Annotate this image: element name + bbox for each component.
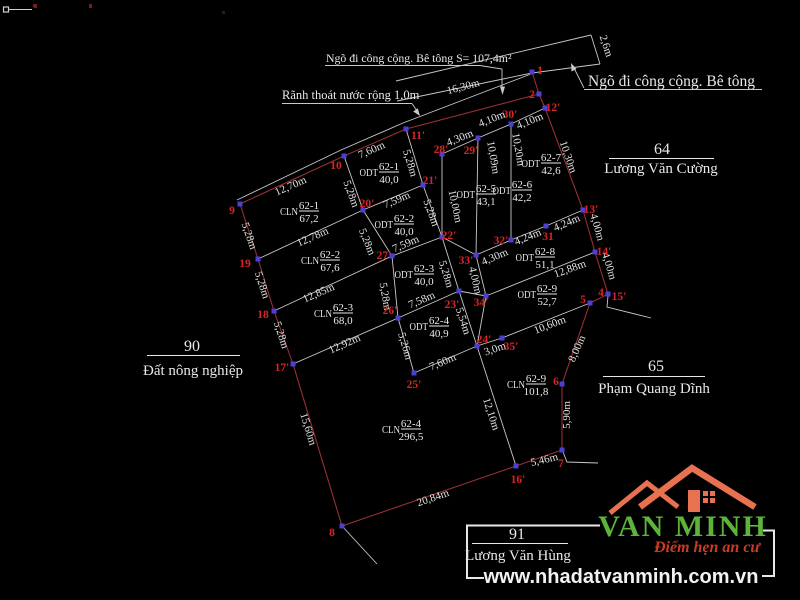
- svg-text:22': 22': [442, 230, 457, 242]
- svg-text:32': 32': [494, 235, 509, 247]
- svg-text:12': 12': [546, 102, 561, 114]
- svg-text:CLN: CLN: [301, 255, 320, 267]
- svg-text:23': 23': [445, 299, 460, 311]
- svg-text:34': 34': [474, 297, 489, 309]
- svg-text:62-9: 62-9: [537, 283, 558, 295]
- svg-text:Rãnh thoát nước rộng 1,0m: Rãnh thoát nước rộng 1,0m: [282, 88, 420, 102]
- svg-text:67,2: 67,2: [299, 213, 318, 225]
- svg-text:5,90m: 5,90m: [561, 401, 573, 429]
- svg-text:CLN: CLN: [280, 206, 299, 218]
- svg-text:1: 1: [537, 65, 543, 77]
- svg-text:ODT: ODT: [409, 321, 428, 333]
- svg-text:17': 17': [275, 362, 290, 374]
- svg-text:8: 8: [329, 527, 335, 539]
- svg-text:62-4: 62-4: [401, 418, 422, 430]
- svg-text:ODT: ODT: [394, 269, 413, 281]
- svg-text:28': 28': [434, 144, 449, 156]
- svg-text:40,0: 40,0: [379, 174, 399, 186]
- svg-text:67,6: 67,6: [320, 262, 340, 274]
- svg-text:2: 2: [529, 89, 535, 101]
- svg-text:13': 13': [584, 204, 599, 216]
- svg-text:Phạm Quang Dĩnh: Phạm Quang Dĩnh: [598, 381, 710, 397]
- svg-text:91: 91: [509, 526, 525, 543]
- svg-text:62-4: 62-4: [429, 315, 450, 327]
- svg-text:40,9: 40,9: [429, 328, 449, 340]
- svg-text:42,6: 42,6: [541, 165, 561, 177]
- svg-text:ODT: ODT: [359, 167, 378, 179]
- svg-text:ODT: ODT: [374, 219, 393, 231]
- svg-text:296,5: 296,5: [399, 431, 424, 443]
- svg-text:ODT: ODT: [456, 189, 475, 201]
- svg-text:40,0: 40,0: [414, 276, 434, 288]
- svg-text:11': 11': [411, 130, 425, 142]
- svg-text:15': 15': [612, 291, 627, 303]
- svg-text:26': 26': [383, 305, 398, 317]
- svg-text:ODT: ODT: [521, 158, 540, 170]
- svg-text:51,1: 51,1: [535, 259, 554, 271]
- svg-text:9: 9: [229, 205, 235, 217]
- svg-text:62-2: 62-2: [320, 249, 340, 261]
- svg-text:65: 65: [648, 358, 664, 375]
- svg-text:25': 25': [407, 379, 422, 391]
- svg-text:27': 27': [377, 250, 392, 262]
- svg-text:ODT: ODT: [517, 289, 536, 301]
- svg-text:52,7: 52,7: [537, 296, 557, 308]
- svg-text:21': 21': [423, 175, 438, 187]
- svg-text:90: 90: [184, 338, 200, 355]
- svg-text:62-6: 62-6: [512, 179, 533, 191]
- svg-text:ODT: ODT: [492, 185, 511, 197]
- svg-text:68,0: 68,0: [333, 315, 353, 327]
- svg-text:62-2: 62-2: [394, 213, 414, 225]
- svg-text:30': 30': [503, 109, 518, 121]
- svg-text:31: 31: [542, 231, 554, 243]
- svg-text:19: 19: [239, 258, 251, 270]
- svg-text:CLN: CLN: [314, 308, 333, 320]
- svg-text:Ngõ đi công cộng. Bê tông S= 1: Ngõ đi công cộng. Bê tông S= 107,4m²: [326, 51, 512, 65]
- svg-text:35': 35': [504, 341, 519, 353]
- svg-text:101,8: 101,8: [524, 386, 549, 398]
- svg-text:10: 10: [330, 160, 342, 172]
- svg-text:62-8: 62-8: [535, 246, 556, 258]
- svg-text:64: 64: [654, 141, 670, 158]
- svg-text:Đất nông nghiệp: Đất nông nghiệp: [143, 363, 243, 379]
- svg-text:62-1: 62-1: [299, 200, 319, 212]
- svg-text:24': 24': [477, 334, 492, 346]
- svg-text:6: 6: [553, 376, 559, 388]
- svg-text:62-9: 62-9: [526, 373, 547, 385]
- svg-text:Điểm hẹn an cư: Điểm hẹn an cư: [653, 539, 761, 556]
- svg-text:ODT: ODT: [515, 252, 534, 264]
- svg-text:40,0: 40,0: [394, 226, 414, 238]
- svg-text:42,2: 42,2: [512, 192, 531, 204]
- svg-text:Ngõ đi công cộng. Bê tông: Ngõ đi công cộng. Bê tông: [588, 73, 755, 90]
- svg-text:14': 14': [597, 246, 612, 258]
- svg-text:62-7: 62-7: [541, 152, 562, 164]
- svg-text:62-1: 62-1: [379, 161, 399, 173]
- svg-text:5: 5: [580, 294, 586, 306]
- svg-text:7: 7: [558, 458, 564, 470]
- svg-text:Lương Văn Cường: Lương Văn Cường: [604, 161, 718, 177]
- svg-text:18: 18: [257, 309, 269, 321]
- svg-text:33': 33': [459, 255, 474, 267]
- svg-text:16': 16': [511, 474, 526, 486]
- svg-text:Lương Văn Hùng: Lương Văn Hùng: [465, 548, 571, 564]
- svg-text:43,1: 43,1: [476, 196, 495, 208]
- svg-text:62-3: 62-3: [333, 302, 354, 314]
- svg-text:www.nhadatvanminh.com.vn: www.nhadatvanminh.com.vn: [483, 566, 759, 588]
- svg-text:62-3: 62-3: [414, 263, 435, 275]
- svg-text:4: 4: [598, 287, 604, 299]
- svg-text:29': 29': [464, 145, 479, 157]
- svg-text:20': 20': [360, 198, 375, 210]
